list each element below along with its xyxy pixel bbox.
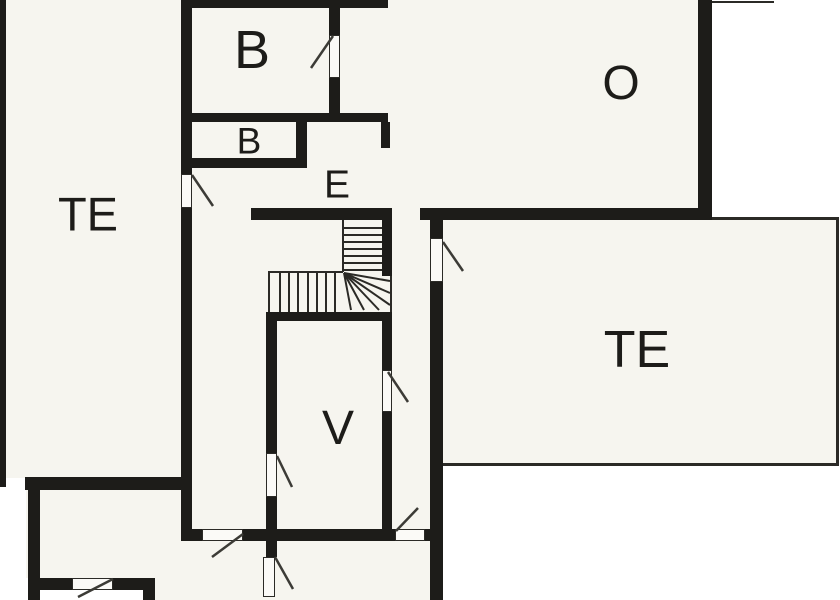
floor-area <box>26 478 430 578</box>
wall-segment <box>381 122 390 148</box>
floor-area <box>155 578 430 600</box>
door-opening <box>263 557 275 597</box>
room-label-te-left: TE <box>58 191 118 238</box>
boundary-line <box>268 271 270 312</box>
wall-segment <box>329 78 340 114</box>
stair-tread <box>334 273 336 312</box>
stair-tread <box>325 273 327 312</box>
door-opening <box>202 529 243 541</box>
floor-area <box>6 219 430 478</box>
wall-segment <box>382 412 392 541</box>
wall-segment <box>266 312 392 321</box>
wall-segment <box>0 0 6 487</box>
stair-tread <box>343 255 382 257</box>
stair-tread <box>316 273 318 312</box>
room-label-v: V <box>322 405 354 453</box>
wall-segment <box>243 529 395 541</box>
stair-tread <box>297 273 299 312</box>
wall-segment <box>181 208 192 530</box>
boundary-line <box>712 217 838 220</box>
wall-segment <box>251 208 392 220</box>
wall-segment <box>143 578 155 600</box>
boundary-line <box>390 276 392 312</box>
door-opening <box>72 578 113 590</box>
room-label-te-right: TE <box>604 324 670 376</box>
floor-plan-canvas: BBEOTETEV <box>0 0 840 600</box>
stair-tread <box>343 234 382 236</box>
stair-tread <box>343 241 382 243</box>
stair-tread <box>307 273 309 312</box>
wall-segment <box>698 0 712 219</box>
room-label-e: E <box>324 166 350 205</box>
boundary-line <box>710 1 774 3</box>
wall-segment <box>25 477 192 490</box>
wall-segment <box>28 578 72 590</box>
wall-segment <box>183 113 388 122</box>
stair-tread <box>343 262 382 264</box>
stair-tread <box>288 273 290 312</box>
wall-segment <box>329 0 340 35</box>
room-label-o: O <box>602 60 639 108</box>
boundary-line <box>443 463 839 466</box>
door-opening <box>395 529 425 541</box>
wall-segment <box>266 312 277 453</box>
room-label-b-lower: B <box>237 123 262 160</box>
door-opening <box>382 370 392 412</box>
stair-tread <box>343 269 382 271</box>
wall-segment <box>430 219 443 238</box>
stair-tread <box>343 248 382 250</box>
door-opening <box>329 35 340 78</box>
wall-segment <box>181 0 192 174</box>
wall-segment <box>430 282 443 600</box>
door-opening <box>181 174 192 208</box>
wall-segment <box>420 208 712 220</box>
wall-segment <box>382 312 392 370</box>
door-opening <box>430 238 443 282</box>
door-opening <box>266 453 277 497</box>
wall-segment <box>382 208 392 276</box>
wall-segment <box>266 497 277 557</box>
stair-tread <box>279 273 281 312</box>
stair-tread <box>343 227 382 229</box>
boundary-line <box>836 217 839 466</box>
wall-segment <box>183 0 388 8</box>
wall-segment <box>181 529 202 541</box>
room-label-b-upper: B <box>234 23 270 77</box>
